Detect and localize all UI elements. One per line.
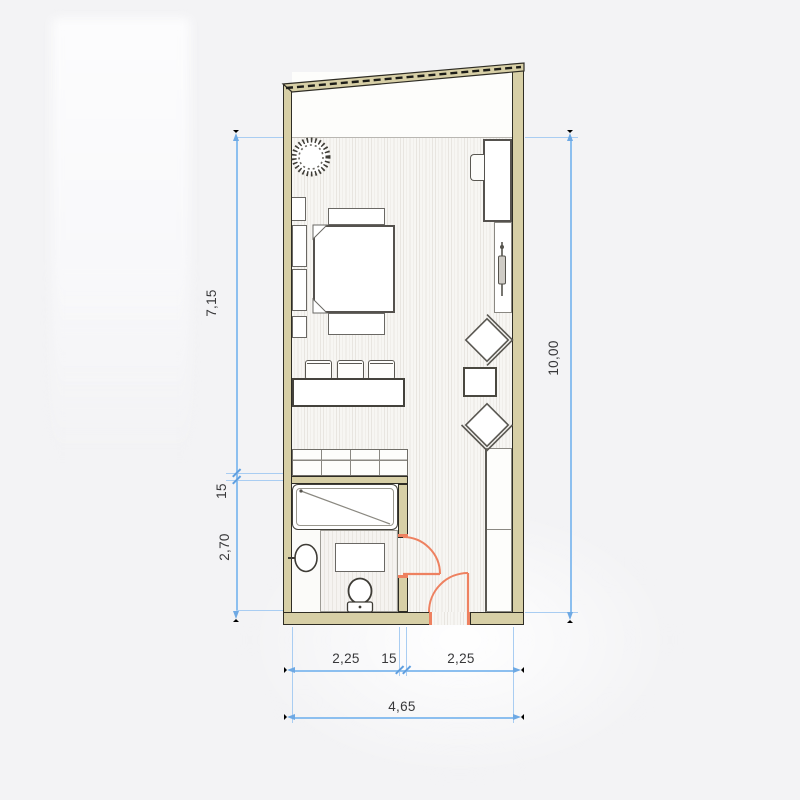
background-shading-left (52, 18, 190, 458)
dim-line-bottom-total (292, 717, 513, 719)
bed (313, 225, 395, 313)
bed-bench-north (328, 208, 385, 225)
wall-bottom-right (470, 612, 524, 625)
dim-ext-line (236, 610, 283, 611)
dim-label-2-25-left: 2,25 (326, 651, 366, 666)
bar-stool-1 (305, 360, 332, 380)
dim-label-15-bottom: 15 (377, 651, 401, 666)
side-table (463, 367, 497, 397)
counter-table (292, 378, 405, 407)
desk-side-unit (494, 222, 512, 313)
dim-label-10-00: 10,00 (546, 335, 560, 381)
wardrobe (485, 448, 512, 612)
bathroom-wall-top (291, 476, 408, 484)
dim-arrow (233, 130, 239, 141)
bed-bench-south (328, 313, 385, 335)
dim-arrow (513, 667, 524, 673)
dim-arrow (233, 611, 239, 622)
wall-bottom-left (283, 612, 432, 625)
bed-pillow-1 (292, 225, 307, 267)
dim-ext-line (236, 137, 283, 138)
dresser-cabinet (292, 449, 408, 476)
bed-pillow-2 (292, 269, 307, 311)
entry-threshold-floor (432, 612, 470, 625)
bathroom-vanity (335, 543, 385, 572)
dim-label-15-left: 15 (214, 479, 228, 503)
desk-chair-icon (470, 154, 484, 181)
bathroom-wall-right-lower (398, 576, 408, 612)
dim-arrow (284, 714, 295, 720)
bar-stool-3 (368, 360, 395, 380)
dim-arrow (567, 130, 573, 141)
dim-label-7-15: 7,15 (204, 283, 218, 323)
floor-area-top (292, 72, 512, 138)
floor-plan-canvas: 7,15 15 2,70 10,00 2,25 15 2,25 4,65 (0, 0, 800, 800)
dim-label-2-70: 2,70 (217, 527, 231, 567)
dim-arrow (513, 714, 524, 720)
wall-right (512, 66, 524, 625)
dim-label-2-25-right: 2,25 (441, 651, 481, 666)
dim-arrow (284, 667, 295, 673)
dim-line-right (570, 137, 572, 612)
desk (483, 139, 512, 222)
dim-label-4-65: 4,65 (382, 699, 422, 714)
bar-stool-2 (337, 360, 364, 380)
bathtub-inner (296, 488, 394, 526)
dim-line-left (236, 137, 238, 611)
bathroom-wall-right-upper (398, 484, 408, 538)
dim-arrow (567, 612, 573, 623)
nightstand-south (292, 316, 307, 338)
nightstand-north (291, 197, 306, 221)
wall-left (283, 85, 292, 625)
